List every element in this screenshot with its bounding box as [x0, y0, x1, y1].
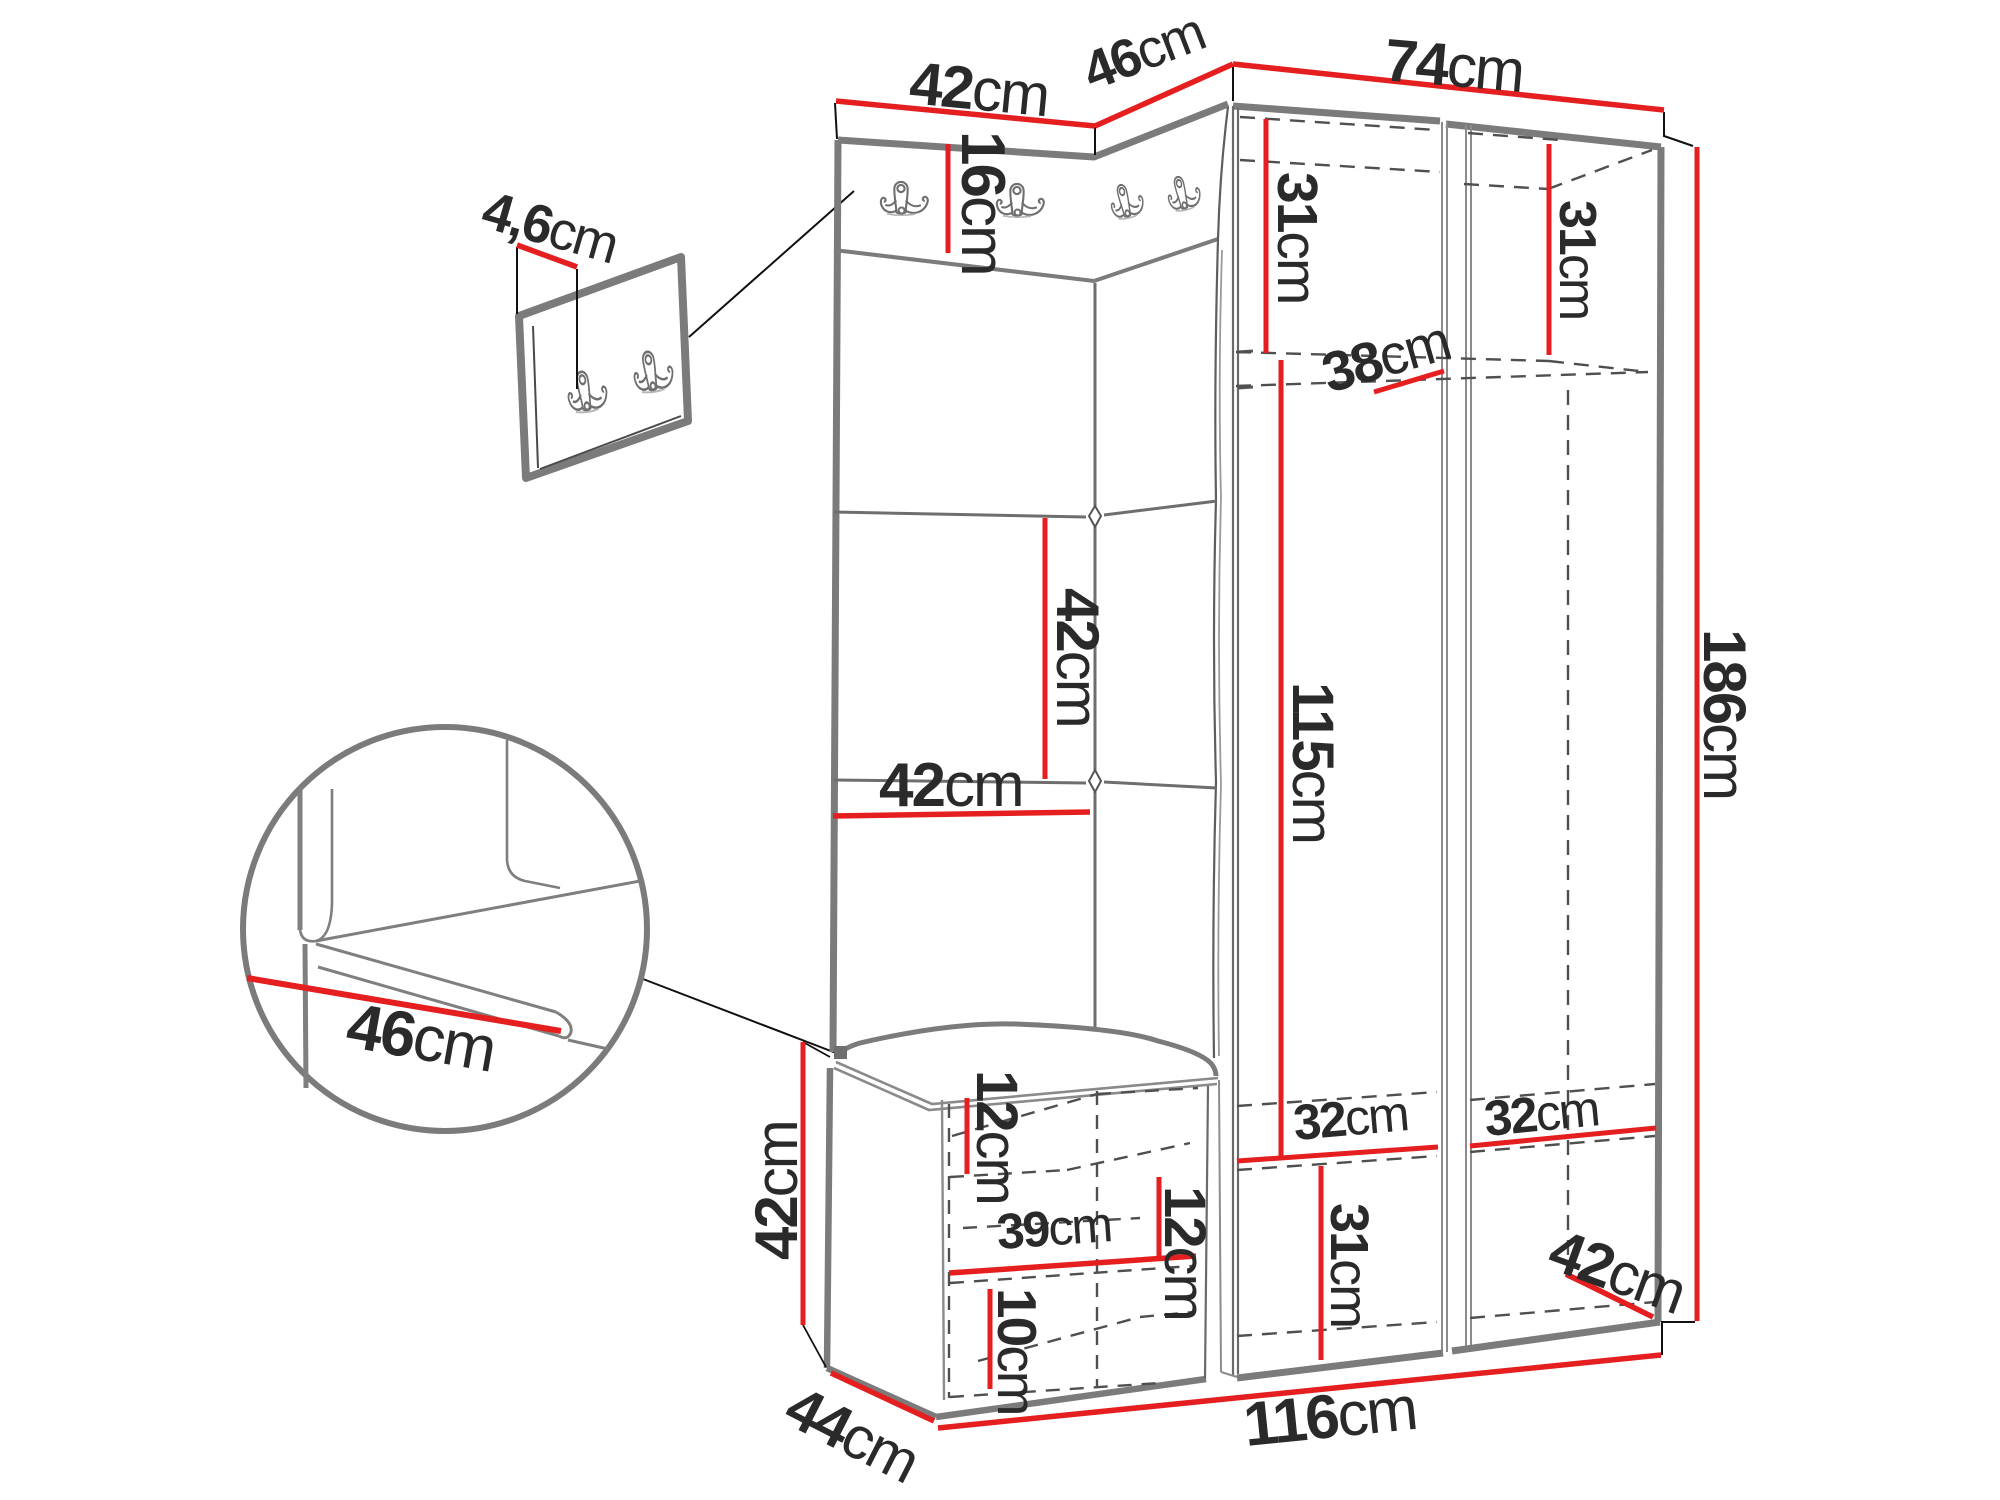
- svg-text:74cm: 74cm: [1382, 26, 1526, 105]
- svg-text:31cm: 31cm: [1265, 172, 1329, 303]
- svg-text:16cm: 16cm: [948, 131, 1017, 275]
- svg-text:32cm: 32cm: [1291, 1085, 1410, 1151]
- svg-text:186cm: 186cm: [1691, 629, 1758, 799]
- svg-text:42cm: 42cm: [907, 49, 1052, 129]
- svg-text:42cm: 42cm: [743, 1121, 810, 1260]
- svg-text:115cm: 115cm: [1280, 682, 1345, 843]
- svg-text:12cm: 12cm: [1152, 1186, 1217, 1320]
- svg-text:42cm: 42cm: [1044, 588, 1111, 727]
- svg-text:39cm: 39cm: [995, 1196, 1113, 1260]
- svg-text:31cm: 31cm: [1319, 1203, 1379, 1327]
- svg-text:32cm: 32cm: [1482, 1080, 1601, 1147]
- svg-text:31cm: 31cm: [1548, 200, 1606, 319]
- svg-text:10cm: 10cm: [986, 1288, 1048, 1415]
- svg-text:12cm: 12cm: [964, 1070, 1029, 1204]
- svg-text:42cm: 42cm: [879, 751, 1023, 820]
